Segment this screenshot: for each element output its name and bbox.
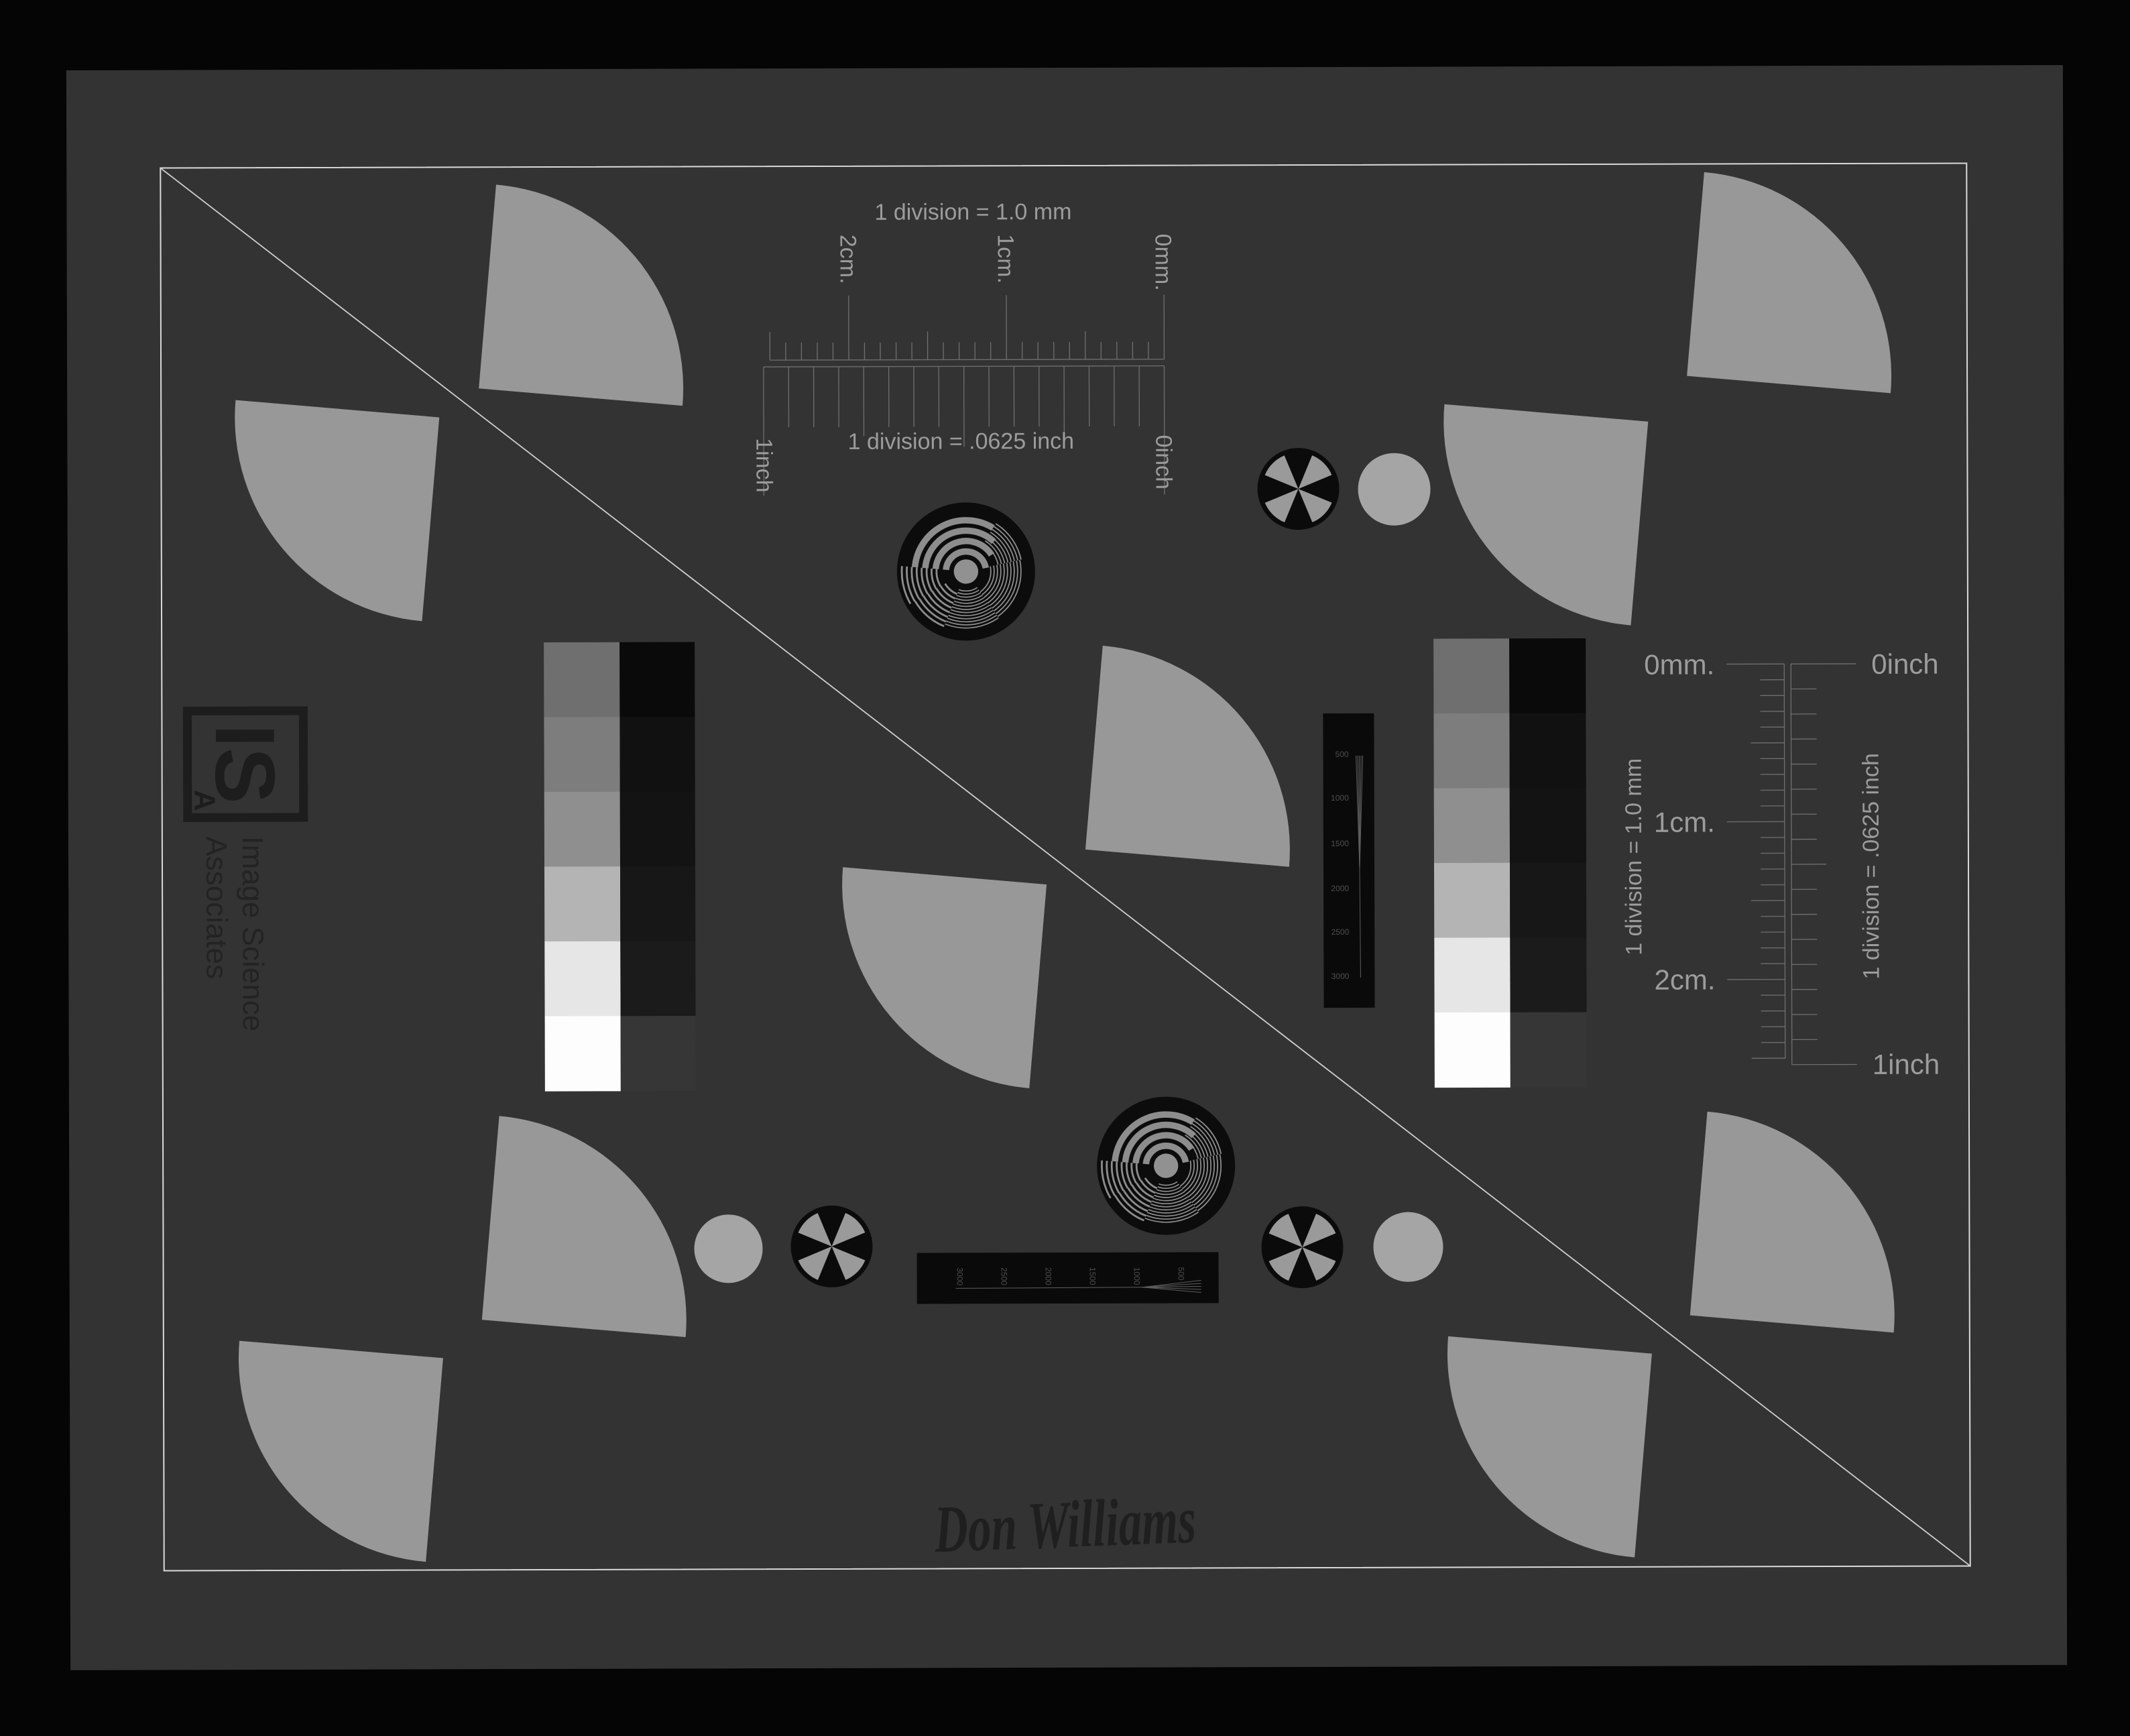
svg-text:Associates: Associates xyxy=(200,836,233,979)
svg-text:1000: 1000 xyxy=(1132,1267,1142,1285)
svg-text:1500: 1500 xyxy=(1088,1267,1098,1285)
svg-text:1 division = .0625 inch: 1 division = .0625 inch xyxy=(1858,753,1885,980)
svg-text:2000: 2000 xyxy=(1044,1267,1053,1285)
svg-text:1cm.: 1cm. xyxy=(1654,806,1715,837)
svg-text:0mm.: 0mm. xyxy=(1644,648,1714,680)
svg-text:2500: 2500 xyxy=(1332,927,1350,937)
svg-text:1000: 1000 xyxy=(1331,793,1349,803)
svg-text:2500: 2500 xyxy=(1000,1267,1009,1285)
svg-text:1500: 1500 xyxy=(1331,839,1349,848)
svg-text:Don Williams: Don Williams xyxy=(933,1483,1197,1567)
svg-text:500: 500 xyxy=(1177,1267,1186,1281)
svg-text:1inch: 1inch xyxy=(1873,1049,1940,1080)
svg-text:0mm.: 0mm. xyxy=(1150,234,1176,291)
svg-text:1 division = 1.0 mm: 1 division = 1.0 mm xyxy=(874,199,1071,225)
svg-text:1 division = .0625 inch: 1 division = .0625 inch xyxy=(848,428,1075,455)
svg-text:0inch: 0inch xyxy=(1150,435,1176,489)
svg-text:Image Science: Image Science xyxy=(236,836,270,1031)
svg-text:3000: 3000 xyxy=(955,1267,965,1285)
svg-text:0inch: 0inch xyxy=(1871,648,1939,680)
svg-text:A: A xyxy=(188,790,221,811)
svg-text:2cm.: 2cm. xyxy=(1654,964,1715,995)
svg-text:1 division = 1.0 mm: 1 division = 1.0 mm xyxy=(1621,758,1647,956)
svg-text:2000: 2000 xyxy=(1331,884,1349,893)
svg-text:2cm.: 2cm. xyxy=(835,235,861,284)
svg-text:3000: 3000 xyxy=(1332,972,1350,981)
svg-text:500: 500 xyxy=(1336,750,1349,759)
svg-text:1inch: 1inch xyxy=(751,438,776,492)
svg-text:1cm.: 1cm. xyxy=(993,234,1018,284)
